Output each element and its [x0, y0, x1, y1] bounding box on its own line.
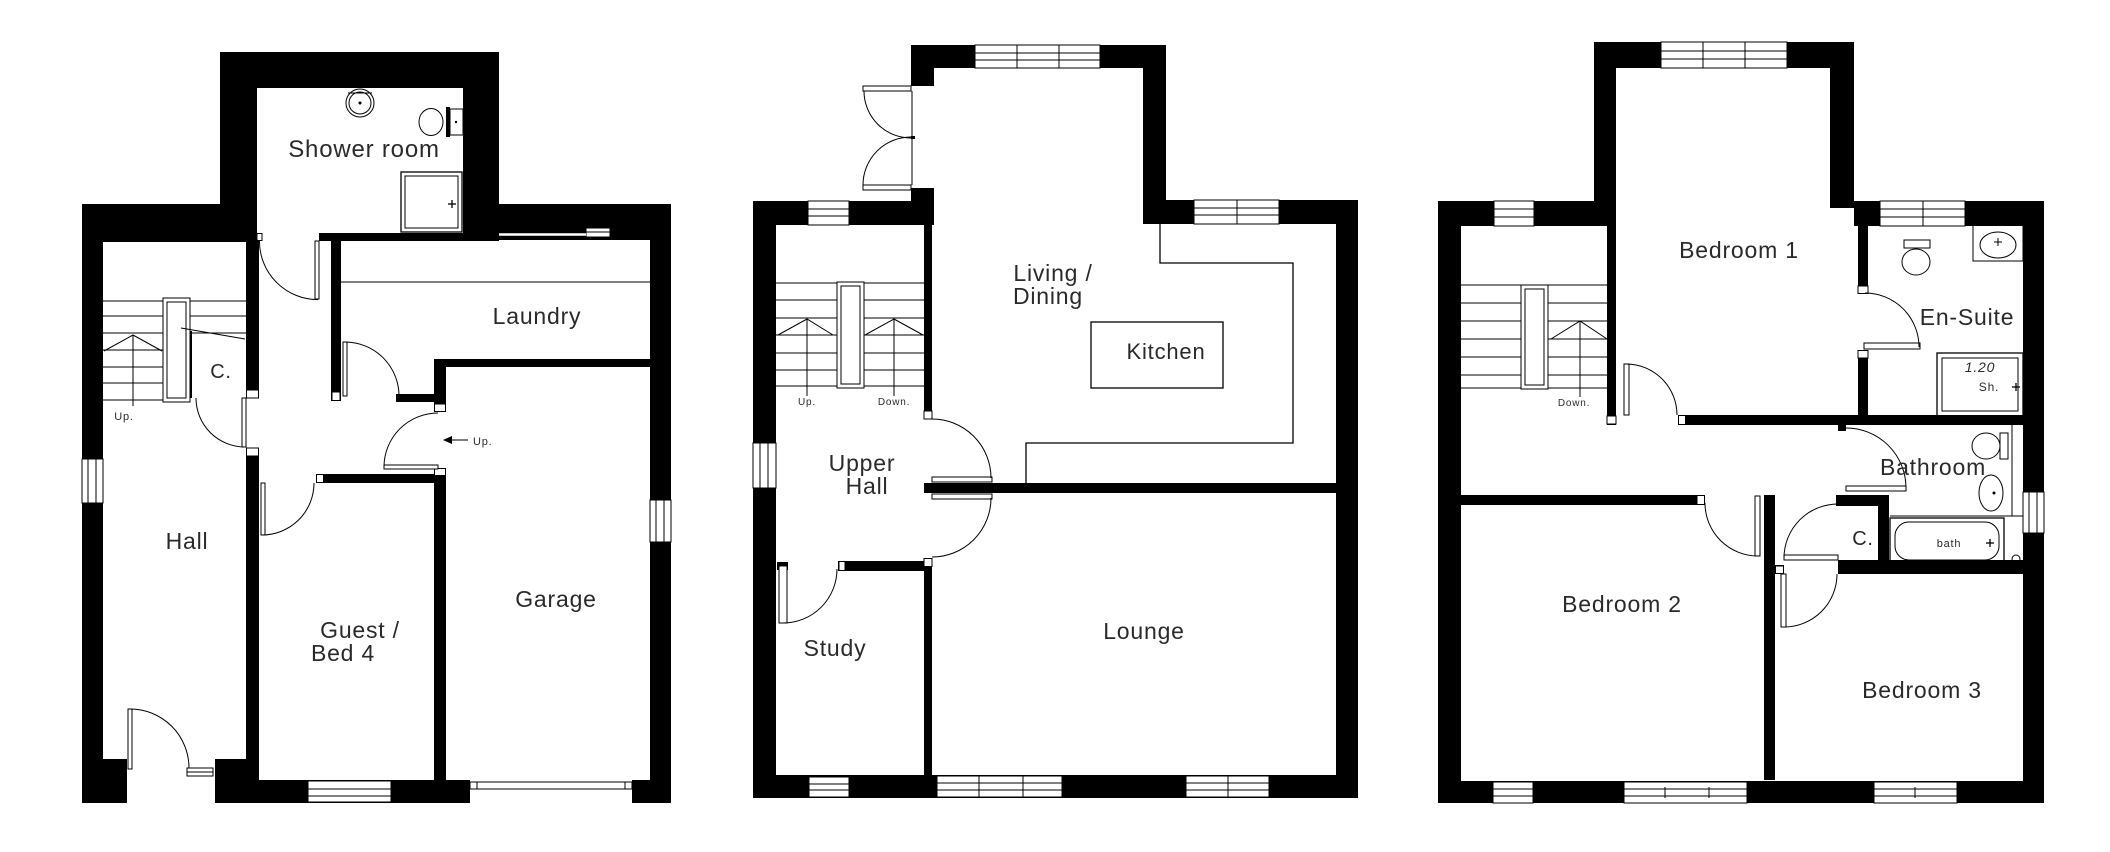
svg-text:Up.: Up.	[473, 436, 493, 448]
svg-text:Bed 4: Bed 4	[311, 640, 375, 666]
svg-text:Bathroom: Bathroom	[1880, 454, 1986, 480]
svg-text:bath: bath	[1937, 538, 1962, 550]
svg-text:C.: C.	[1852, 528, 1874, 550]
svg-text:En-Suite: En-Suite	[1920, 304, 2015, 330]
svg-text:Hall: Hall	[846, 473, 889, 499]
svg-text:Sh.: Sh.	[1979, 380, 1999, 394]
svg-text:Up.: Up.	[114, 411, 134, 423]
svg-text:Bedroom 1: Bedroom 1	[1679, 237, 1799, 263]
svg-text:Shower room: Shower room	[288, 136, 440, 163]
svg-text:Bedroom 3: Bedroom 3	[1862, 677, 1982, 703]
svg-text:Up.: Up.	[798, 397, 816, 408]
svg-text:Study: Study	[804, 635, 867, 661]
svg-text:Laundry: Laundry	[493, 303, 582, 329]
svg-text:Lounge: Lounge	[1103, 618, 1185, 644]
svg-text:1.20: 1.20	[1965, 359, 1995, 375]
svg-text:Dining: Dining	[1013, 283, 1083, 309]
svg-text:Kitchen: Kitchen	[1127, 339, 1206, 364]
svg-text:Down.: Down.	[878, 397, 910, 408]
svg-text:C.: C.	[210, 361, 232, 383]
svg-text:Garage: Garage	[515, 586, 597, 612]
svg-text:Hall: Hall	[166, 528, 209, 554]
svg-text:Down.: Down.	[1558, 398, 1590, 409]
svg-text:Bedroom 2: Bedroom 2	[1562, 591, 1682, 617]
